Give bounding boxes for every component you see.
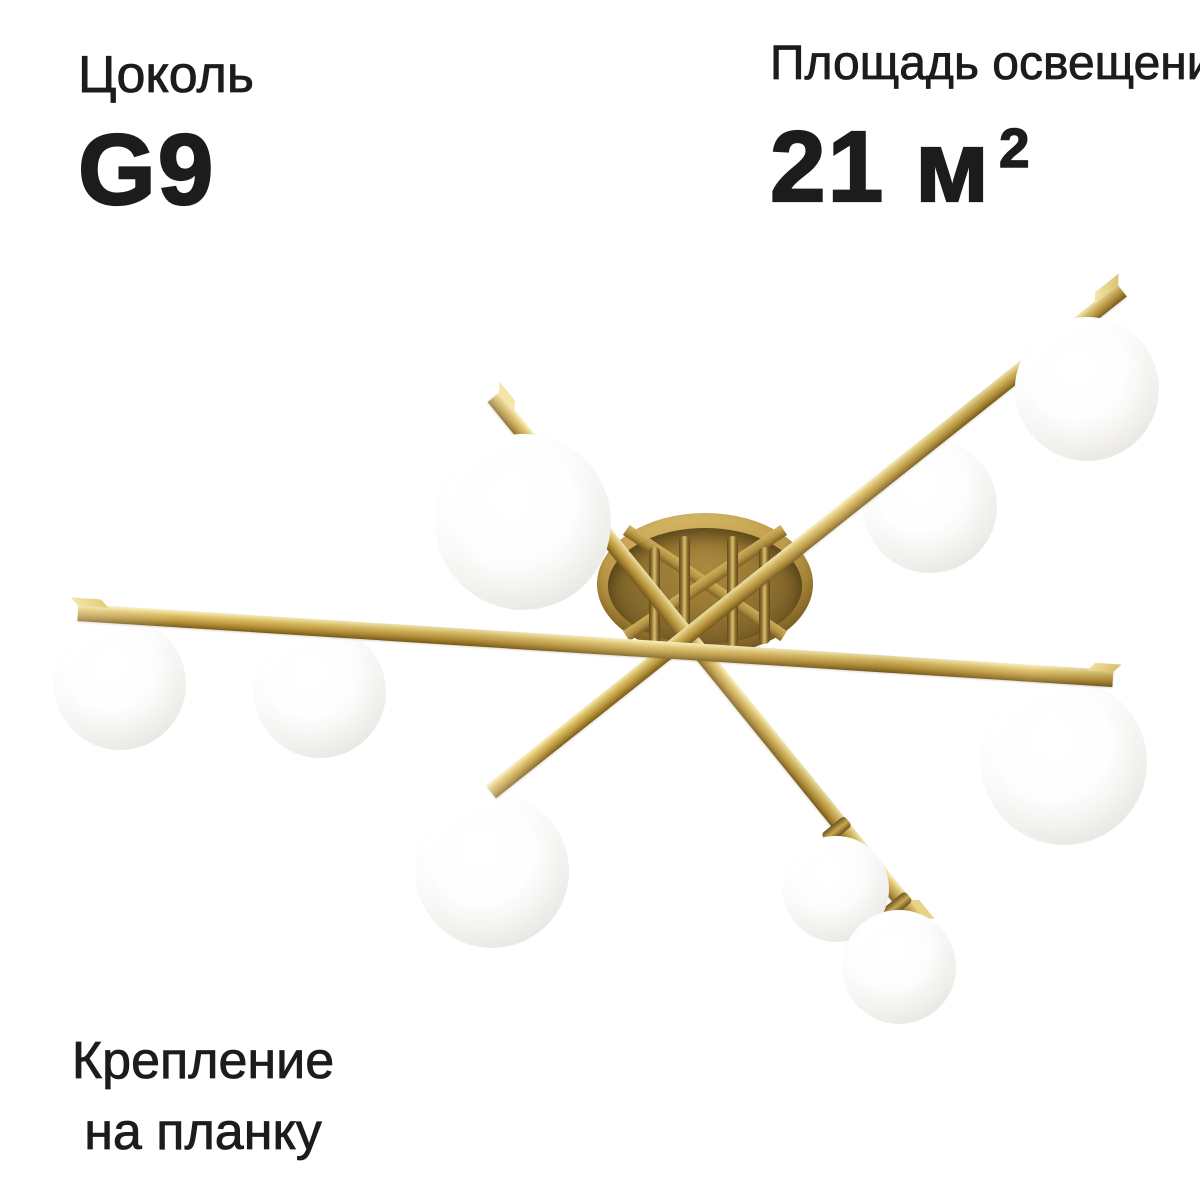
glass-globe bbox=[435, 434, 611, 610]
glass-globe bbox=[415, 794, 569, 948]
glass-globe bbox=[981, 679, 1147, 845]
glass-globe bbox=[1015, 317, 1159, 461]
glass-globe bbox=[842, 910, 956, 1024]
light-arm-bar bbox=[77, 604, 1113, 687]
glass-globe bbox=[54, 618, 186, 750]
ceiling-canopy bbox=[597, 513, 813, 655]
chandelier-photo bbox=[0, 0, 1200, 1200]
product-card: Цоколь G9 Площадь освещения 21 м2 Крепле… bbox=[0, 0, 1200, 1200]
glass-globe bbox=[863, 439, 997, 573]
glass-globe bbox=[254, 626, 386, 758]
